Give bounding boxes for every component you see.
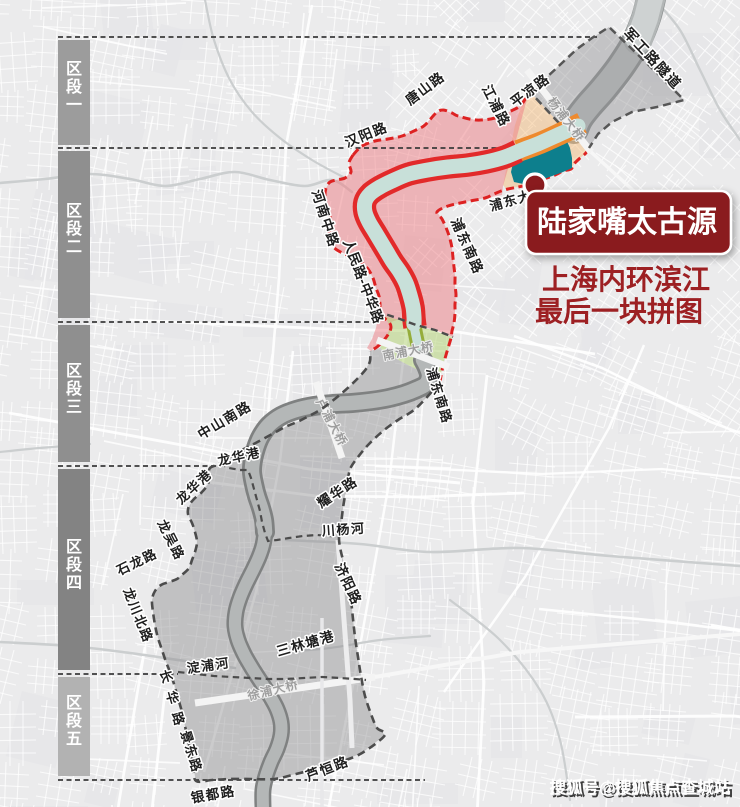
svg-text:区段一: 区段一 bbox=[66, 60, 83, 114]
svg-text:区段三: 区段三 bbox=[66, 362, 83, 416]
svg-text:川杨河: 川杨河 bbox=[320, 521, 365, 539]
svg-text:陆家嘴太古源: 陆家嘴太古源 bbox=[537, 206, 717, 239]
svg-text:上海内环滨江: 上海内环滨江 bbox=[542, 264, 710, 295]
svg-text:区段五: 区段五 bbox=[66, 694, 83, 748]
svg-text:搜狐号@搜狐焦点查城站: 搜狐号@搜狐焦点查城站 bbox=[549, 777, 731, 797]
svg-text:区段二: 区段二 bbox=[66, 202, 83, 256]
svg-text:区段四: 区段四 bbox=[66, 538, 83, 592]
svg-text:最后一块拼图: 最后一块拼图 bbox=[535, 296, 703, 327]
